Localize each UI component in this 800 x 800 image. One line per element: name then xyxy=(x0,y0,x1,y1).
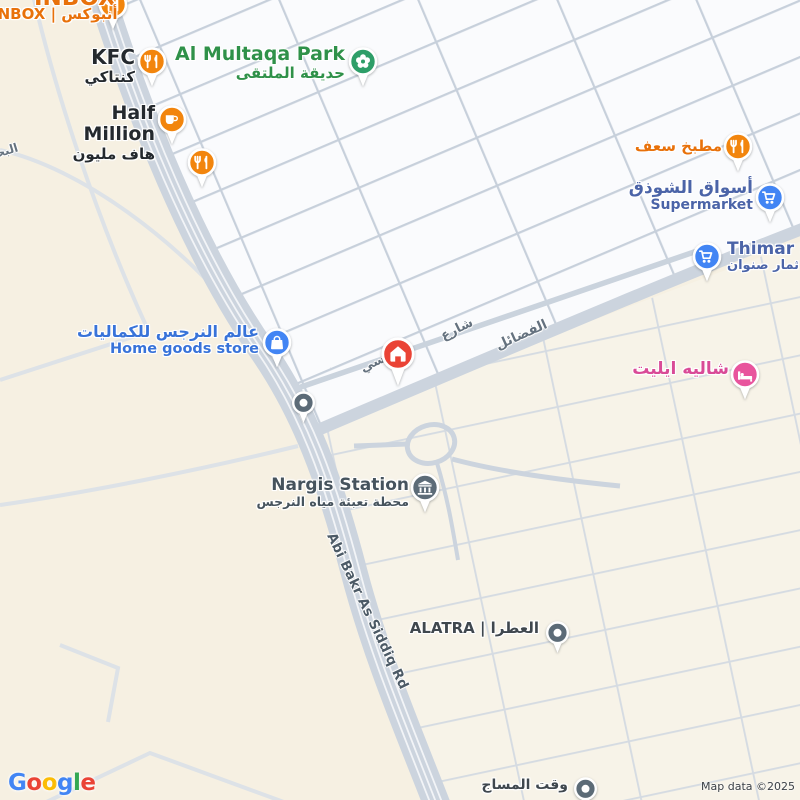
generic-pin-alatra[interactable] xyxy=(544,621,571,655)
poi-label-thimar[interactable]: Thimar Se ثمار صنوان xyxy=(727,240,800,274)
station-pin-nargis[interactable] xyxy=(408,473,442,515)
map-data-attribution: Map data ©2025 xyxy=(701,780,795,793)
park-pin-al-multaqa[interactable] xyxy=(346,47,380,89)
store-pin-narjis[interactable] xyxy=(260,328,294,370)
cafe-pin-half-million[interactable] xyxy=(155,105,189,147)
poi-label-inbox-subtitle[interactable]: INBOX | أنبوكس xyxy=(0,6,118,23)
poi-label-alatra[interactable]: ALATRA | العطرا xyxy=(397,620,539,637)
generic-pin-massage[interactable] xyxy=(572,777,599,800)
supermarket-pin-thimar[interactable] xyxy=(690,242,724,284)
supermarket-pin-shawthaq[interactable] xyxy=(753,183,787,225)
google-map[interactable]: البحـ شارع سي الفضائل Abi Bakr As Siddiq… xyxy=(0,0,800,800)
restaurant-pin-unnamed[interactable] xyxy=(185,148,219,190)
restaurant-pin-saaf[interactable] xyxy=(721,132,755,174)
google-logo[interactable]: Google xyxy=(8,770,95,796)
poi-label-shawthaq[interactable]: أسواق الشوذق Supermarket xyxy=(593,179,753,214)
poi-label-chalet[interactable]: شاليه ايليت xyxy=(587,360,729,379)
poi-label-narjis[interactable]: عالم النرجس للكماليات Home goods store xyxy=(57,323,259,357)
poi-label-saaf[interactable]: مطبخ سعف xyxy=(598,138,722,155)
destination-house-marker[interactable] xyxy=(378,337,418,389)
hotel-pin-chalet[interactable] xyxy=(728,360,762,402)
poi-label-massage[interactable]: وقت المساج xyxy=(446,778,568,794)
poi-label-kfc[interactable]: KFC كنتاكي xyxy=(35,46,135,86)
poi-label-nargis-station[interactable]: Nargis Station محطة تعبئة مياه النرجس xyxy=(237,476,409,509)
restaurant-pin-kfc[interactable] xyxy=(135,47,169,89)
generic-place-pin[interactable] xyxy=(290,391,317,425)
poi-label-half-million[interactable]: Half Million هاف مليون xyxy=(48,103,155,163)
poi-label-al-multaqa-park[interactable]: Al Multaqa Park حديقة الملتقى xyxy=(175,44,345,82)
